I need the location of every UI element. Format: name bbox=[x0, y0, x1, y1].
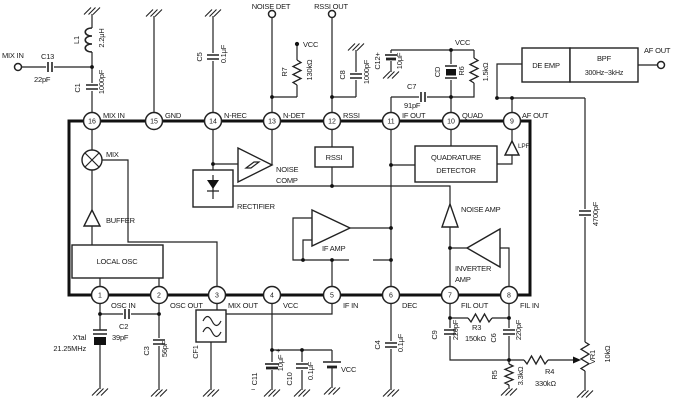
r3-resistor bbox=[468, 314, 492, 322]
af-out-io-label: AF OUT bbox=[644, 46, 671, 55]
pin-6-label: DEC bbox=[402, 301, 418, 310]
rssi-out-terminal bbox=[329, 11, 336, 18]
rssi-out-io-label: RSSI OUT bbox=[314, 2, 348, 11]
pin-7-number: 7 bbox=[448, 293, 452, 300]
mix-in-terminal bbox=[15, 64, 22, 71]
pin-12-number: 12 bbox=[328, 119, 336, 126]
quadrature-label-2: DETECTOR bbox=[436, 166, 476, 175]
vcc-label-quad: VCC bbox=[455, 38, 471, 47]
c1-value: 1000pF bbox=[97, 69, 106, 94]
af-out-terminal bbox=[658, 62, 665, 69]
c7-capacitor bbox=[421, 92, 425, 102]
inverter-amp-label-1: INVERTER bbox=[455, 264, 492, 273]
pin-11-number: 11 bbox=[387, 119, 394, 126]
pin-4-number: 4 bbox=[270, 293, 274, 300]
c12-value: 10μF bbox=[395, 52, 404, 69]
if-amp-triangle bbox=[312, 210, 350, 246]
mix-block-label: MIX bbox=[106, 150, 119, 159]
buffer-triangle bbox=[84, 210, 100, 226]
lpf-label: LPF bbox=[518, 143, 530, 150]
c5-value: 0.1μF bbox=[219, 44, 228, 63]
xtal-ref: X'tal bbox=[73, 333, 87, 342]
buffer-block-label: BUFFER bbox=[106, 216, 136, 225]
pin-16-number: 16 bbox=[88, 119, 96, 126]
rectifier-label: RECTIFIER bbox=[237, 202, 276, 211]
c6-value: 220pF bbox=[514, 319, 523, 340]
pin-13-label: N-DET bbox=[283, 111, 306, 120]
vcc-label-battery: VCC bbox=[341, 365, 357, 374]
pin-1-label: OSC IN bbox=[111, 301, 136, 310]
pin-9-number: 9 bbox=[510, 119, 514, 126]
c5-capacitor bbox=[207, 55, 219, 59]
r3-ref: R3 bbox=[472, 323, 481, 332]
vr1-value: 10kΩ bbox=[603, 345, 612, 362]
r4-resistor bbox=[524, 356, 548, 364]
pin-5-label: IF IN bbox=[343, 301, 358, 310]
c13-capacitor bbox=[48, 62, 52, 72]
noise-comp-label-2: COMP bbox=[276, 176, 298, 185]
r7-value: 130kΩ bbox=[305, 59, 314, 80]
c11-minus: − bbox=[251, 385, 256, 394]
pin-11-label: IF OUT bbox=[402, 111, 426, 120]
c5-ref: C5 bbox=[195, 52, 204, 61]
pin-4-label: VCC bbox=[283, 301, 299, 310]
c8-ref: C8 bbox=[338, 70, 347, 79]
bpf-range-label: 300Hz~3kHz bbox=[585, 70, 624, 77]
noise-det-io-label: NOISE DET bbox=[252, 2, 291, 11]
c11-value: 10μF bbox=[276, 354, 285, 371]
c8-capacitor bbox=[350, 74, 362, 78]
pin-14-label: N-REC bbox=[224, 111, 248, 120]
pin-10-number: 10 bbox=[447, 119, 455, 126]
c12-ref: C12+ bbox=[373, 52, 382, 70]
c7-ref: C7 bbox=[407, 82, 416, 91]
pin-8-label: FIL IN bbox=[520, 301, 539, 310]
l1-inductor bbox=[85, 28, 92, 52]
pin-8-number: 8 bbox=[507, 293, 511, 300]
c4-value: 0.1μF bbox=[396, 333, 405, 352]
pin-5-number: 5 bbox=[330, 293, 334, 300]
mix-in-io-label: MIX IN bbox=[2, 51, 24, 60]
mixer-symbol bbox=[82, 150, 102, 170]
caf-value: 4700pF bbox=[591, 201, 600, 226]
r5-value: 3.3kΩ bbox=[516, 366, 525, 385]
c2-ref: C2 bbox=[119, 322, 128, 331]
xtal-value: 21.25MHz bbox=[53, 344, 86, 353]
c2-value: 39pF bbox=[112, 333, 129, 342]
vr1-ref: VR1 bbox=[588, 350, 597, 364]
l1-ref: L1 bbox=[72, 36, 81, 44]
noise-comp-label-1: NOISE bbox=[276, 165, 299, 174]
c3-ref: C3 bbox=[142, 346, 151, 355]
de-emp-label: DE EMP bbox=[532, 61, 560, 70]
if-amp-label: IF AMP bbox=[322, 244, 346, 253]
bpf-label: BPF bbox=[597, 54, 612, 63]
c3-value: 56pF bbox=[160, 340, 169, 357]
cf1-ref: CF1 bbox=[191, 345, 200, 359]
noise-comp-amp bbox=[238, 148, 272, 182]
pin-15-label: GND bbox=[165, 111, 182, 120]
pin-3-number: 3 bbox=[215, 293, 219, 300]
quadrature-label-1: QUADRATURE bbox=[431, 153, 481, 162]
pin-12-label: RSSI bbox=[343, 111, 360, 120]
caf-capacitor bbox=[579, 211, 591, 215]
pin-6-number: 6 bbox=[389, 293, 393, 300]
vcc-battery bbox=[323, 362, 341, 367]
quadrature-detector-box bbox=[415, 146, 497, 182]
vr1-potentiometer bbox=[573, 342, 589, 371]
c2-capacitor bbox=[125, 309, 129, 319]
c10-ref: C10 bbox=[285, 372, 294, 385]
pin-13-number: 13 bbox=[268, 119, 276, 126]
r7-ref: R7 bbox=[280, 67, 289, 76]
c9-ref: C9 bbox=[430, 330, 439, 339]
r6-ref: R6 bbox=[457, 66, 466, 75]
pin-10-label: QUAD bbox=[462, 111, 484, 120]
noise-det-terminal bbox=[269, 11, 276, 18]
xtal-crystal bbox=[93, 330, 107, 345]
pin-16-label: MIX IN bbox=[103, 111, 125, 120]
r6-resistor bbox=[470, 58, 478, 83]
pin-7-label: FIL OUT bbox=[461, 301, 489, 310]
cf1-filter bbox=[196, 310, 226, 342]
r5-ref: R5 bbox=[490, 370, 499, 379]
c13-ref: C13 bbox=[41, 52, 54, 61]
c4-ref: C4 bbox=[373, 340, 382, 349]
cd-discriminator bbox=[445, 66, 457, 78]
c11-ref: C11 bbox=[250, 373, 259, 386]
pin-9-label: AF OUT bbox=[522, 111, 549, 120]
inverter-amp-label-2: AMP bbox=[455, 275, 471, 284]
r5-resistor bbox=[505, 364, 513, 385]
c10-value: 0.1μF bbox=[306, 361, 315, 380]
schematic-page: 16 15 14 13 12 11 10 9 1 2 3 4 5 6 7 8 M… bbox=[0, 0, 685, 405]
r7-resistor bbox=[293, 60, 301, 85]
pin-3-label: MIX OUT bbox=[228, 301, 258, 310]
r4-value: 330kΩ bbox=[535, 379, 556, 388]
c9-value: 220pF bbox=[451, 319, 460, 340]
r3-value: 150kΩ bbox=[465, 334, 486, 343]
vcc-label-r7: VCC bbox=[303, 40, 319, 49]
pin-2-label: OSC OUT bbox=[170, 301, 203, 310]
r6-value: 1.5kΩ bbox=[481, 62, 490, 81]
l1-value: 2.2μH bbox=[97, 28, 106, 47]
c8-value: 1000pF bbox=[362, 59, 371, 84]
noise-amp-triangle bbox=[442, 204, 458, 227]
c6-ref: C6 bbox=[489, 333, 498, 342]
r4-ref: R4 bbox=[545, 367, 554, 376]
pin-1-number: 1 bbox=[98, 293, 102, 300]
pin-15-number: 15 bbox=[150, 119, 158, 126]
pin-2-number: 2 bbox=[157, 293, 161, 300]
fm-if-ic-schematic: 16 15 14 13 12 11 10 9 1 2 3 4 5 6 7 8 M… bbox=[0, 0, 685, 405]
inverter-amp-triangle bbox=[467, 229, 500, 267]
c1-ref: C1 bbox=[73, 83, 82, 92]
pin-14-number: 14 bbox=[209, 119, 217, 126]
c7-value: 91pF bbox=[404, 101, 421, 110]
noise-amp-label: NOISE AMP bbox=[461, 205, 501, 214]
local-osc-label: LOCAL OSC bbox=[97, 257, 139, 266]
c13-value: 22pF bbox=[34, 75, 51, 84]
rectifier-box bbox=[193, 170, 233, 207]
cd-ref: CD bbox=[433, 66, 442, 77]
vr1-wiper-arrow bbox=[573, 357, 581, 364]
rssi-block-label: RSSI bbox=[326, 153, 343, 162]
lpf-triangle bbox=[505, 141, 519, 155]
